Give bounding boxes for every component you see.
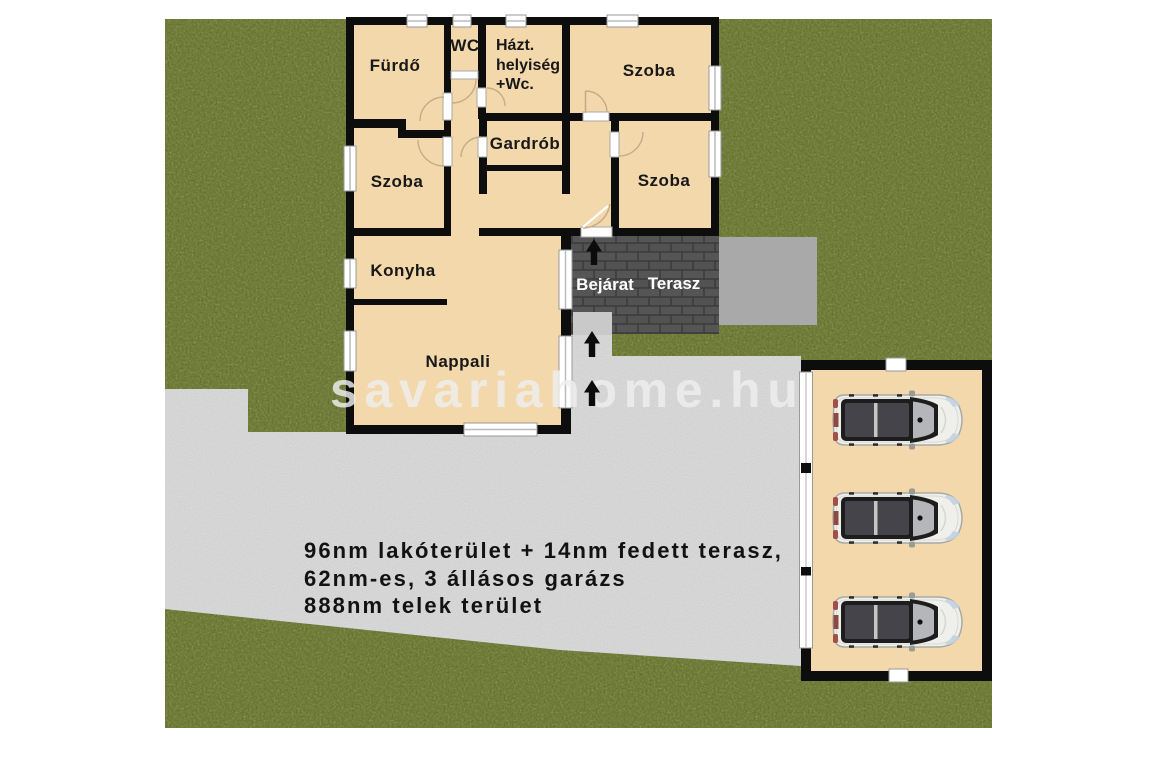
svg-text:Szoba: Szoba xyxy=(371,172,424,191)
svg-text:Bejárat: Bejárat xyxy=(576,275,634,294)
svg-text:Terasz: Terasz xyxy=(648,274,701,293)
svg-text:888nm telek terület: 888nm telek terület xyxy=(304,593,543,618)
svg-text:Fürdő: Fürdő xyxy=(370,56,421,75)
svg-text:Szoba: Szoba xyxy=(623,61,676,80)
svg-text:+Wc.: +Wc. xyxy=(496,76,534,93)
svg-text:savariahome.hu: savariahome.hu xyxy=(330,362,805,418)
svg-text:helyiség: helyiség xyxy=(496,57,560,74)
svg-text:Házt.: Házt. xyxy=(496,37,534,54)
svg-text:Konyha: Konyha xyxy=(370,261,435,280)
svg-text:Szoba: Szoba xyxy=(638,171,691,190)
svg-text:96nm lakóterület + 14nm fedett: 96nm lakóterület + 14nm fedett terasz, xyxy=(304,538,783,563)
svg-text:Gardrób: Gardrób xyxy=(490,134,561,153)
svg-text:62nm-es, 3 állásos garázs: 62nm-es, 3 állásos garázs xyxy=(304,566,627,591)
svg-text:WC: WC xyxy=(450,36,479,55)
